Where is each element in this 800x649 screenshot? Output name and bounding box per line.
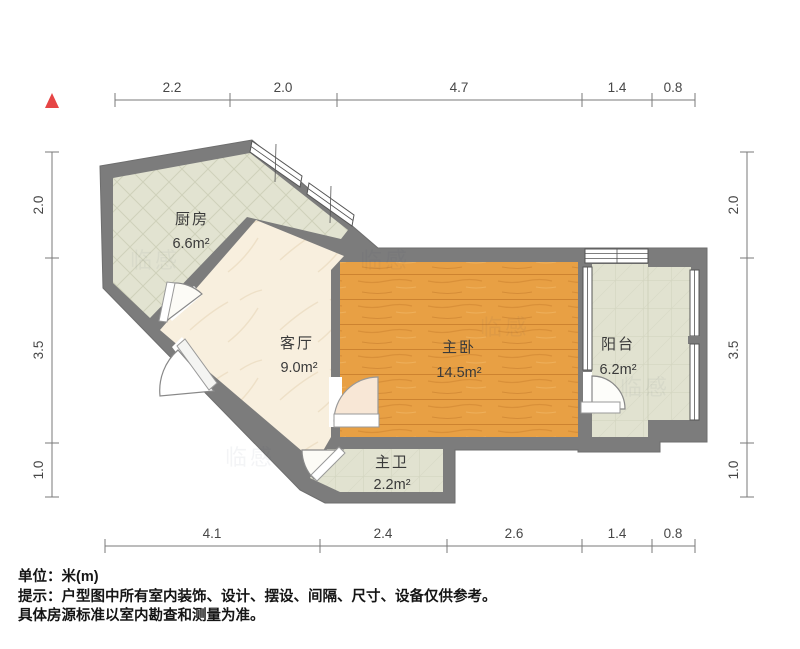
room-bedroom-area: 14.5m² <box>436 365 481 381</box>
dim-bottom-1: 4.1 <box>203 526 222 541</box>
dim-left-3: 1.0 <box>31 461 46 480</box>
dimension-right <box>740 152 754 497</box>
bedroom-door <box>329 377 379 427</box>
dimension-left <box>45 152 59 497</box>
floorplan-svg: 临感 临感 临感 临感 临感 厨房 6.6m² 客厅 9.0m² 主卧 14.5… <box>0 0 800 649</box>
room-balcony-name: 阳台 <box>601 336 635 353</box>
note-tip: 提示：户型图中所有室内装饰、设计、摆设、间隔、尺寸、设备仅供参考。 <box>18 587 497 605</box>
dimension-top-labels: 2.2 2.0 4.7 1.4 0.8 <box>163 80 683 95</box>
balcony-top-window <box>585 249 648 263</box>
room-kitchen-name: 厨房 <box>175 211 209 228</box>
note-unit: 单位：米(m) <box>18 567 99 585</box>
north-arrow-icon <box>45 93 59 108</box>
dim-bottom-3: 2.6 <box>505 526 524 541</box>
dim-top-4: 1.4 <box>608 80 627 95</box>
dim-top-1: 2.2 <box>163 80 182 95</box>
dimension-top <box>115 93 695 107</box>
room-living-name: 客厅 <box>280 335 314 352</box>
dim-left-2: 3.5 <box>31 341 46 360</box>
dimension-bottom-labels: 4.1 2.4 2.6 1.4 0.8 <box>203 526 683 541</box>
dim-right-2: 3.5 <box>726 341 741 360</box>
dimension-bottom <box>105 539 695 553</box>
balcony-right-window <box>688 270 700 420</box>
dimension-right-labels: 2.0 3.5 1.0 <box>726 196 741 480</box>
room-bathroom-area: 2.2m² <box>373 477 410 493</box>
dim-top-2: 2.0 <box>274 80 293 95</box>
room-bathroom-name: 主卫 <box>375 454 409 471</box>
watermark-text: 临感 <box>480 315 530 340</box>
dim-right-1: 2.0 <box>726 196 741 215</box>
watermark-text: 临感 <box>360 248 410 273</box>
dim-bottom-5: 0.8 <box>664 526 683 541</box>
bedroom-balcony-window <box>583 267 592 370</box>
room-balcony-area: 6.2m² <box>599 362 636 378</box>
room-living-area: 9.0m² <box>280 360 317 376</box>
dimension-left-labels: 2.0 3.5 1.0 <box>31 196 46 480</box>
note-tip2: 具体房源标准以室内勘查和测量为准。 <box>18 606 265 624</box>
floorplan-page: 临感 临感 临感 临感 临感 厨房 6.6m² 客厅 9.0m² 主卧 14.5… <box>0 0 800 649</box>
dim-right-3: 1.0 <box>726 461 741 480</box>
dim-top-5: 0.8 <box>664 80 683 95</box>
room-bedroom-name: 主卧 <box>442 339 476 356</box>
watermark-text: 临感 <box>620 375 670 400</box>
watermark-text: 临感 <box>225 445 275 470</box>
dim-top-3: 4.7 <box>450 80 469 95</box>
dim-left-1: 2.0 <box>31 196 46 215</box>
room-kitchen-area: 6.6m² <box>172 236 209 252</box>
dim-bottom-2: 2.4 <box>374 526 393 541</box>
dim-bottom-4: 1.4 <box>608 526 627 541</box>
footnotes: 单位：米(m) 提示：户型图中所有室内装饰、设计、摆设、间隔、尺寸、设备仅供参考… <box>18 567 497 624</box>
